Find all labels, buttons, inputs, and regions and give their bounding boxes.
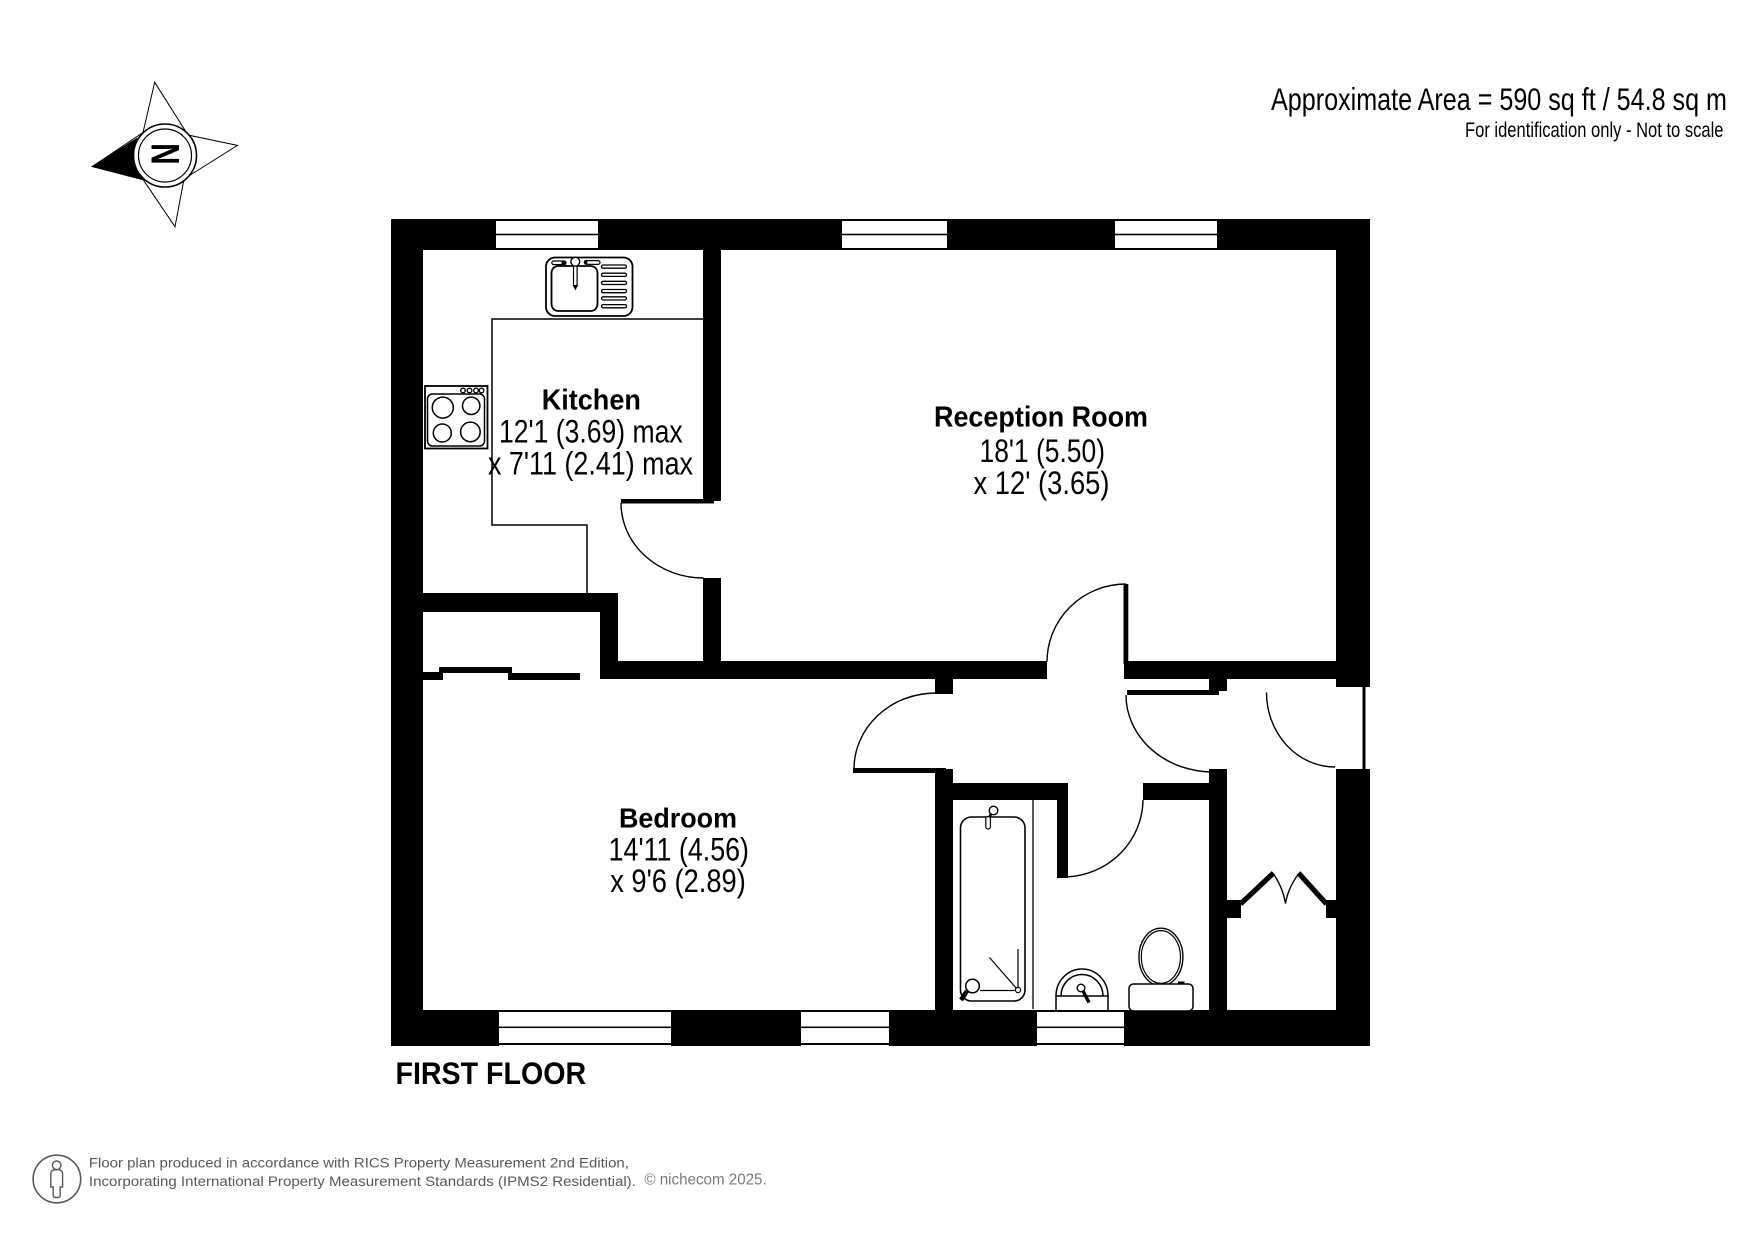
svg-text:Bedroom: Bedroom: [619, 803, 737, 834]
svg-text:12'1 (3.69) max: 12'1 (3.69) max: [499, 414, 683, 450]
svg-text:x 7'11 (2.41) max: x 7'11 (2.41) max: [488, 446, 693, 482]
svg-text:Approximate Area = 590 sq ft /: Approximate Area = 590 sq ft / 54.8 sq m: [1271, 81, 1727, 117]
svg-text:Floor plan produced in accorda: Floor plan produced in accordance with R…: [89, 1156, 629, 1172]
svg-text:For identification only - Not: For identification only - Not to scale: [1465, 119, 1724, 142]
svg-text:18'1 (5.50): 18'1 (5.50): [980, 433, 1106, 469]
svg-text:x 9'6 (2.89): x 9'6 (2.89): [610, 863, 746, 899]
svg-text:x 12' (3.65): x 12' (3.65): [974, 465, 1110, 501]
svg-text:Incorporating International Pr: Incorporating International Property Mea…: [89, 1174, 636, 1190]
svg-text:N: N: [144, 143, 188, 165]
svg-text:FIRST FLOOR: FIRST FLOOR: [396, 1055, 587, 1091]
svg-text:© nichecom 2025.: © nichecom 2025.: [644, 1172, 766, 1189]
svg-text:Kitchen: Kitchen: [542, 384, 641, 416]
svg-text:Reception Room: Reception Room: [934, 402, 1148, 434]
